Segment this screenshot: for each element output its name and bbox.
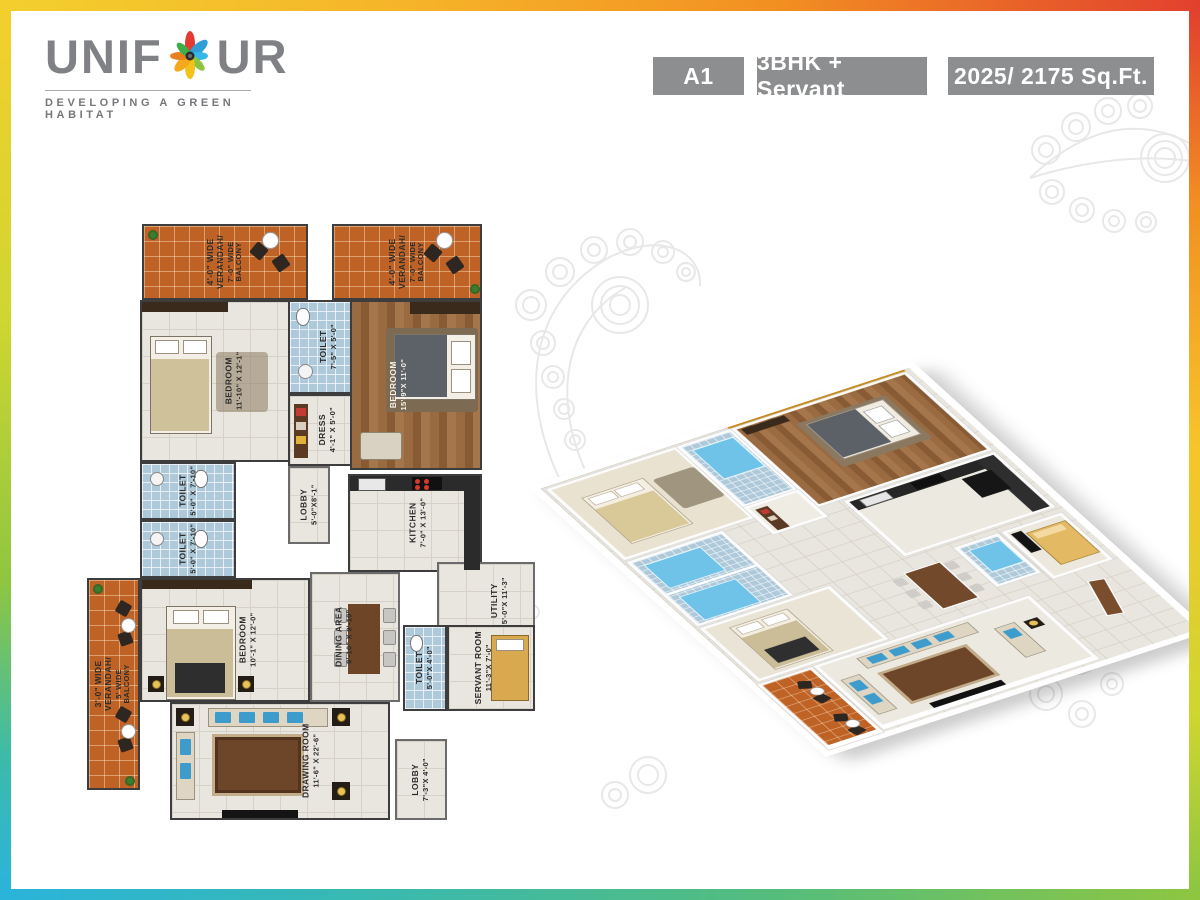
room-label: BEDROOM bbox=[224, 357, 234, 404]
room-dress: DRESS 4'-1" X 5'-0" bbox=[288, 394, 352, 466]
room-lobby-bottom: LOBBY 7'-3"X 4'-0" bbox=[395, 739, 447, 820]
room-dims: 5'-0"X 4'-0" bbox=[426, 646, 435, 689]
unifour-logo: UNIF UR DEVELOPING A GREEN HABITAT bbox=[45, 30, 289, 121]
room-toilet-a: TOILET 5'-0" X 7'-10" bbox=[140, 462, 236, 520]
room-dims: 7'-3"X 4'-0" bbox=[422, 758, 431, 801]
room-toilet-master: TOILET 7'-5" X 5'-0" bbox=[288, 300, 352, 394]
room-label: 4'-0" WIDE VERANDAH/ bbox=[388, 224, 408, 300]
floor-plan-3d bbox=[545, 275, 1185, 835]
room-label: BEDROOM bbox=[238, 616, 248, 663]
room-label: BEDROOM bbox=[389, 361, 399, 408]
room-dims: 15'-9"X 11'-0" bbox=[400, 359, 409, 411]
room-dims: 7'-0" X 13'-0" bbox=[419, 498, 428, 548]
room-dims: 7'-0" WIDE BALCONY bbox=[227, 224, 244, 300]
unit-badge: A1 bbox=[653, 57, 744, 95]
floor-plan-2d: 4'-0" WIDE VERANDAH/ 7'-0" WIDE BALCONY … bbox=[85, 222, 535, 820]
room-label: LOBBY bbox=[411, 764, 421, 796]
room-label: TOILET bbox=[319, 331, 329, 363]
logo-text-pre: UNIF bbox=[45, 33, 163, 80]
room-dims: 5'-0" X 7'-10" bbox=[189, 524, 198, 574]
room-dims: 5'-0"X 11'-3" bbox=[501, 577, 510, 624]
frame-bottom bbox=[0, 889, 1200, 900]
room-servant: SERVANT ROOM 11'-3"X 7'-0" bbox=[447, 625, 535, 711]
room-dining: DINING AREA 9'-10" X 9'-10" bbox=[310, 572, 400, 702]
room-dims: 7'-5" X 5'-0" bbox=[330, 324, 339, 369]
room-dims: 5' WIDE BALCONY bbox=[115, 657, 132, 711]
room-dims: 11'-10" X 12'-1" bbox=[235, 352, 244, 410]
brochure-page: UNIF UR DEVELOPING A GREEN HABITAT A1 3B… bbox=[0, 0, 1200, 900]
frame-top bbox=[0, 0, 1200, 11]
room-dims: 5'-0"X8'-1" bbox=[310, 485, 319, 526]
room-label: DINING AREA bbox=[334, 607, 344, 667]
room-bedroom-3: BEDROOM 10'-1" X 12'-0" bbox=[140, 578, 310, 702]
room-label: 3'-0" WIDE VERANDAH/ bbox=[95, 657, 115, 711]
room-label: DRAWING ROOM bbox=[301, 724, 311, 799]
room-verandah-top-right: 4'-0" WIDE VERANDAH/ 7'-0" WIDE BALCONY bbox=[332, 224, 482, 300]
frame-right bbox=[1189, 11, 1200, 889]
type-badge: 3BHK + Servant bbox=[757, 57, 927, 95]
area-badge: 2025/ 2175 Sq.Ft. bbox=[948, 57, 1154, 95]
room-verandah-top-left: 4'-0" WIDE VERANDAH/ 7'-0" WIDE BALCONY bbox=[142, 224, 308, 300]
room-label: UTILITY bbox=[490, 584, 500, 619]
logo-flower-icon bbox=[164, 30, 216, 82]
room-label: TOILET bbox=[178, 533, 188, 565]
room-lobby-middle: LOBBY 5'-0"X8'-1" bbox=[288, 466, 330, 544]
frame-left bbox=[0, 11, 11, 889]
room-label: 4'-0" WIDE VERANDAH/ bbox=[206, 224, 226, 300]
room-label: DRESS bbox=[318, 414, 328, 445]
room-dims: 11'-3"X 7'-0" bbox=[485, 644, 494, 691]
room-label: TOILET bbox=[178, 475, 188, 507]
room-label: LOBBY bbox=[299, 489, 309, 521]
logo-tagline: DEVELOPING A GREEN HABITAT bbox=[45, 90, 251, 121]
room-label: SERVANT ROOM bbox=[474, 631, 484, 704]
room-label: KITCHEN bbox=[408, 503, 418, 544]
room-drawing: DRAWING ROOM 11'-6" X 22'-6" bbox=[170, 702, 390, 820]
logo-text-post: UR bbox=[217, 33, 289, 80]
room-toilet-b: TOILET 5'-0" X 7'-10" bbox=[140, 520, 236, 578]
room-bedroom-1: BEDROOM 11'-10" X 12'-1" bbox=[140, 300, 290, 462]
iso-apartment bbox=[528, 361, 1200, 757]
room-verandah-left: 3'-0" WIDE VERANDAH/ 5' WIDE BALCONY bbox=[87, 578, 140, 790]
room-dims: 11'-6" X 22'-6" bbox=[312, 734, 321, 788]
room-dims: 9'-10" X 9'-10" bbox=[345, 610, 354, 664]
room-kitchen: KITCHEN 7'-0" X 13'-0" bbox=[348, 474, 482, 572]
room-dims: 5'-0" X 7'-10" bbox=[189, 466, 198, 516]
room-bedroom-master: BEDROOM 15'-9"X 11'-0" bbox=[350, 300, 482, 470]
room-dims: 10'-1" X 12'-0" bbox=[249, 613, 258, 667]
room-toilet-servant: TOILET 5'-0"X 4'-0" bbox=[403, 625, 447, 711]
room-dims: 7'-0" WIDE BALCONY bbox=[409, 224, 426, 300]
room-dims: 4'-1" X 5'-0" bbox=[329, 407, 338, 452]
room-label: TOILET bbox=[415, 652, 425, 684]
